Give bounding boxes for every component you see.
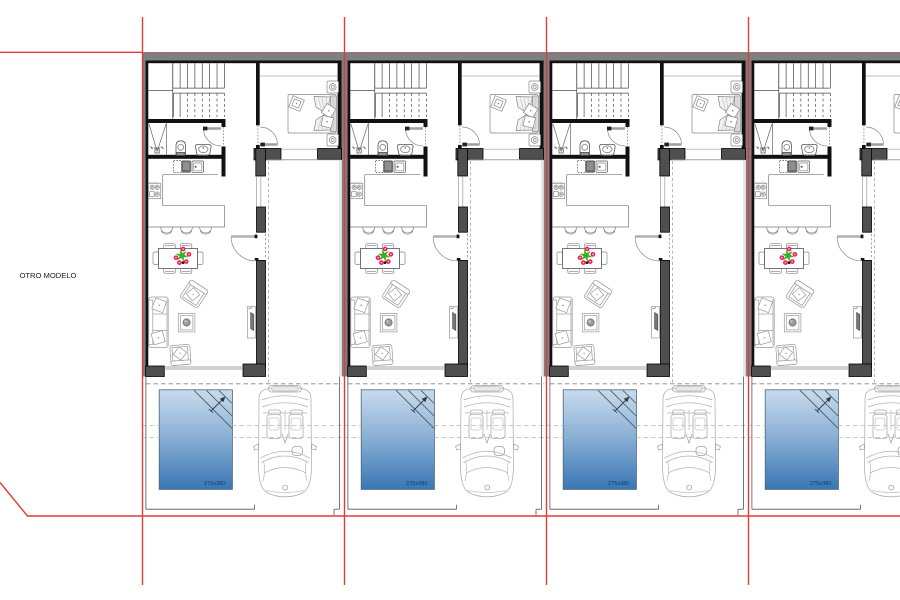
svg-text:275x380: 275x380 [204,481,225,487]
svg-text:275x380: 275x380 [608,481,629,487]
svg-text:275x380: 275x380 [810,481,831,487]
svg-text:OTRO MODELO: OTRO MODELO [20,271,77,280]
svg-text:275x380: 275x380 [406,481,427,487]
